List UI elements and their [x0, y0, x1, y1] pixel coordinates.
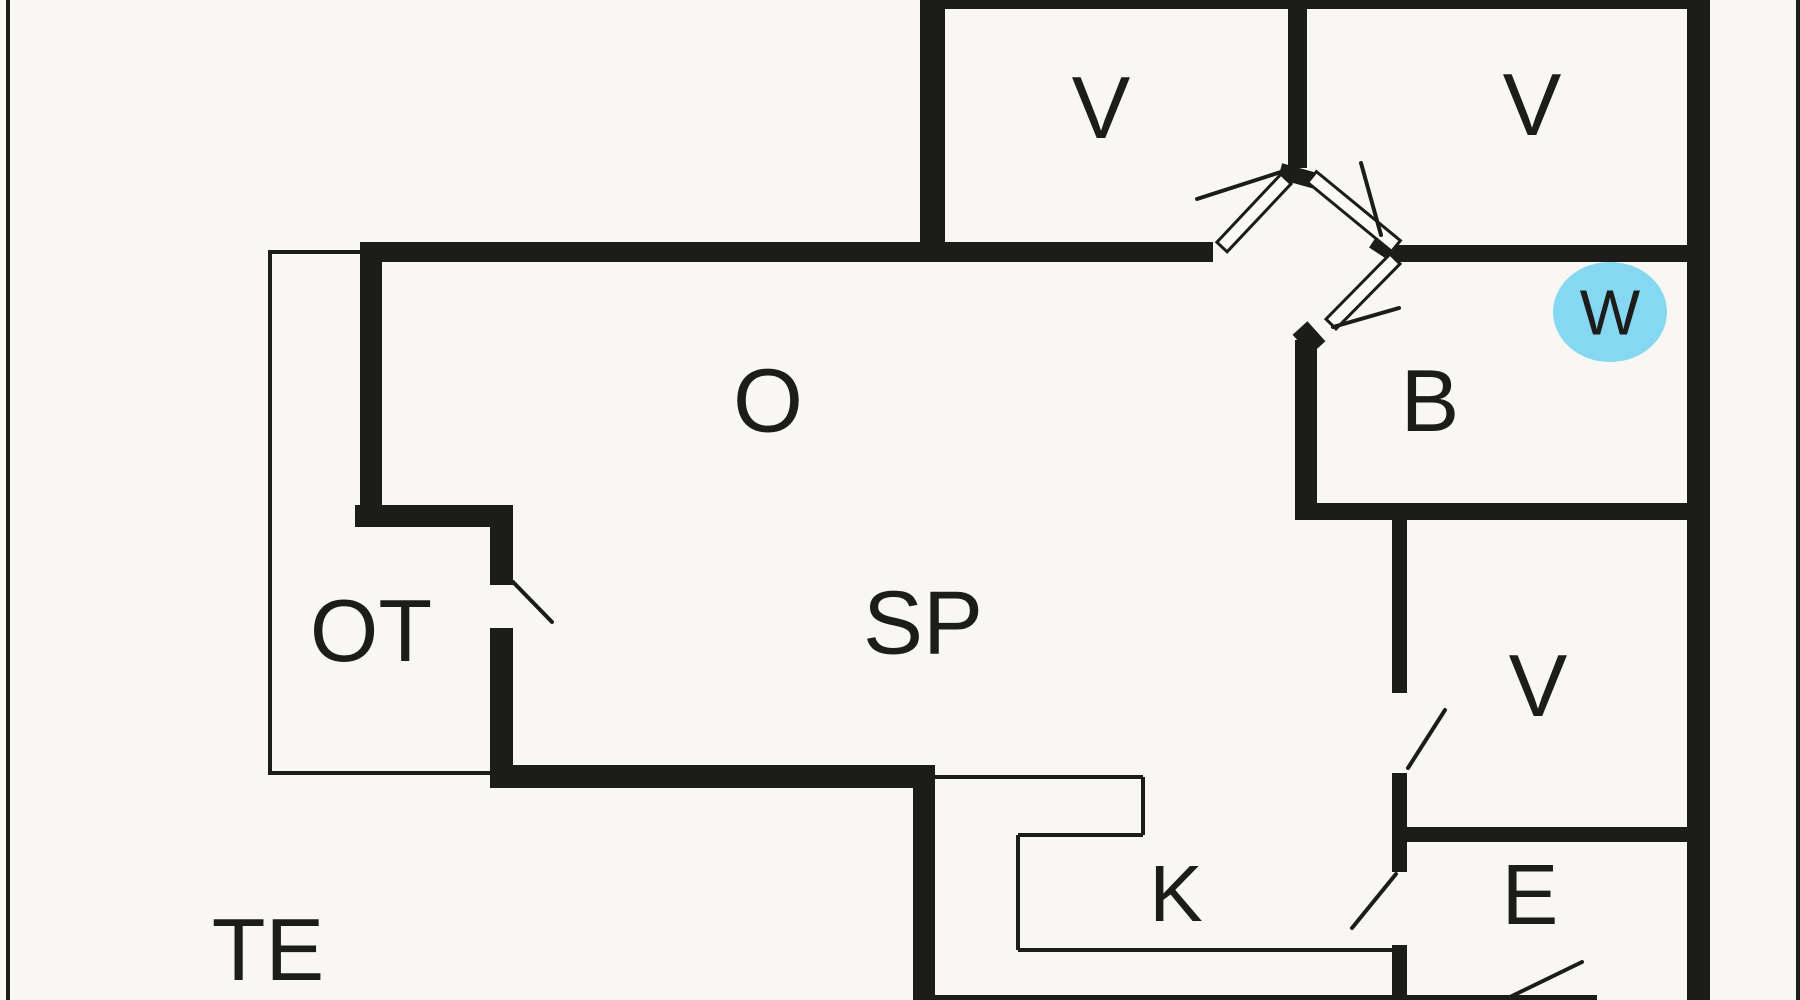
doors-layer	[513, 163, 1582, 997]
partitions-layer	[268, 250, 1393, 950]
wall	[1392, 518, 1407, 693]
wall	[360, 242, 1213, 262]
door-swing-line	[1352, 874, 1396, 928]
room-label-bathroom: B	[1401, 351, 1460, 450]
room-label-entrance: E	[1502, 848, 1559, 943]
room-label-covered-terrace: OT	[310, 581, 432, 680]
room-label-bedroom-mid-right: V	[1509, 636, 1568, 735]
wall	[355, 505, 513, 527]
room-label-bedroom-top-right: V	[1503, 55, 1562, 154]
wall	[1687, 0, 1710, 1000]
door-swing-line	[1510, 962, 1582, 997]
wall	[913, 765, 935, 1000]
wall	[1295, 340, 1317, 518]
plan-border-line	[6, 0, 10, 1000]
door-swing-line	[513, 582, 552, 622]
door-swing-line	[1408, 710, 1445, 768]
wall	[1392, 773, 1407, 872]
floorplan-page: W VVOBOTSPVKETE	[0, 0, 1800, 1000]
room-label-terrace: TE	[212, 900, 324, 999]
marker-layer: W	[1553, 262, 1667, 362]
wall	[1295, 503, 1687, 520]
wall	[360, 242, 382, 527]
wall	[1392, 945, 1407, 1000]
wc-marker-label: W	[1580, 276, 1641, 348]
wall	[1400, 827, 1687, 842]
wall	[490, 505, 513, 585]
wall	[1398, 245, 1687, 262]
room-label-dining-area: SP	[863, 574, 983, 674]
plan-border-line	[1796, 0, 1800, 1000]
wall	[913, 995, 1597, 1000]
wall-end-post	[1300, 328, 1318, 348]
wall	[922, 0, 1710, 9]
room-label-kitchen: K	[1149, 849, 1202, 938]
door-leaf	[1308, 172, 1401, 252]
wall	[490, 628, 513, 788]
wall	[920, 0, 945, 262]
floorplan-svg: W VVOBOTSPVKETE	[0, 0, 1800, 1000]
room-label-living-room: O	[733, 352, 803, 452]
door-leaf	[1217, 174, 1291, 252]
room-label-bedroom-top-center: V	[1072, 58, 1131, 157]
wall	[1288, 0, 1307, 168]
wall	[490, 765, 935, 788]
